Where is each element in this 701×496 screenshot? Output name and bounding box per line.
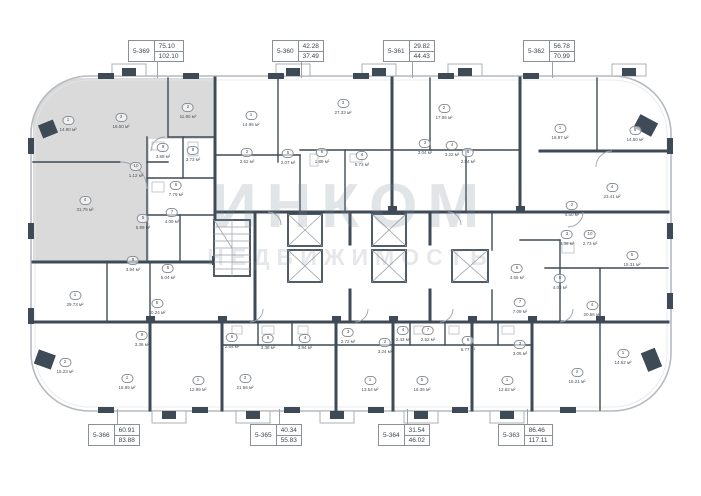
leader-line xyxy=(527,409,528,424)
unit-label-5-366: 5-36660.9183.88 xyxy=(88,424,140,446)
unit-label-5-364: 5-36431.5446.02 xyxy=(378,424,430,446)
unit-areas: 29.8244.43 xyxy=(410,41,434,61)
unit-area-total: 102.10 xyxy=(155,52,183,61)
unit-areas: 60.9183.88 xyxy=(115,425,139,445)
unit-area-living: 40.34 xyxy=(277,426,301,436)
leader-line xyxy=(157,62,158,78)
leader-line xyxy=(301,62,302,78)
unit-area-total: 37.49 xyxy=(299,52,323,61)
unit-number: 5-366 xyxy=(89,425,115,445)
unit-areas: 75.10102.10 xyxy=(155,41,183,61)
unit-areas: 42.2837.49 xyxy=(299,41,323,61)
unit-label-5-360: 5-36042.2837.49 xyxy=(272,40,324,62)
leader-line xyxy=(117,409,118,424)
unit-label-5-365: 5-36540.3455.83 xyxy=(250,424,302,446)
unit-areas: 40.3455.83 xyxy=(277,425,301,445)
stairwell xyxy=(214,220,250,276)
unit-area-total: 70.99 xyxy=(550,52,574,61)
unit-area-living: 29.82 xyxy=(410,42,434,52)
door-arcs xyxy=(120,137,612,322)
unit-area-living: 56.78 xyxy=(550,42,574,52)
unit-number: 5-364 xyxy=(379,425,405,445)
unit-area-total: 55.83 xyxy=(277,436,301,445)
unit-area-living: 31.54 xyxy=(405,426,429,436)
unit-number: 5-369 xyxy=(129,41,155,61)
unit-area-total: 83.88 xyxy=(115,436,139,445)
unit-area-living: 60.91 xyxy=(115,426,139,436)
selected-unit-fill xyxy=(33,78,213,262)
leader-line xyxy=(279,409,280,424)
unit-label-5-363: 5-36386.46117.11 xyxy=(498,424,553,446)
unit-label-5-362: 5-36256.7870.99 xyxy=(523,40,575,62)
unit-label-5-361: 5-36129.8244.43 xyxy=(383,40,435,62)
floorplan-drawing xyxy=(0,0,701,496)
unit-area-living: 86.46 xyxy=(525,426,552,436)
leader-line xyxy=(552,62,553,78)
unit-area-living: 75.10 xyxy=(155,42,183,52)
unit-number: 5-362 xyxy=(524,41,550,61)
unit-number: 5-360 xyxy=(273,41,299,61)
unit-area-total: 46.02 xyxy=(405,436,429,445)
unit-areas: 86.46117.11 xyxy=(525,425,552,445)
unit-label-5-369: 5-36975.10102.10 xyxy=(128,40,184,62)
leader-line xyxy=(407,409,408,424)
unit-area-total: 117.11 xyxy=(525,436,552,445)
unit-areas: 31.5446.02 xyxy=(405,425,429,445)
unit-number: 5-365 xyxy=(251,425,277,445)
elevator-shafts xyxy=(288,214,488,282)
unit-number: 5-361 xyxy=(384,41,410,61)
unit-number: 5-363 xyxy=(499,425,525,445)
floor-plan-canvas: ИНКОМ НЕДВИЖИМОСТЬ 5-36975.10102.105-360… xyxy=(0,0,701,496)
leader-line xyxy=(412,62,413,78)
unit-area-total: 44.43 xyxy=(410,52,434,61)
unit-area-living: 42.28 xyxy=(299,42,323,52)
unit-areas: 56.7870.99 xyxy=(550,41,574,61)
